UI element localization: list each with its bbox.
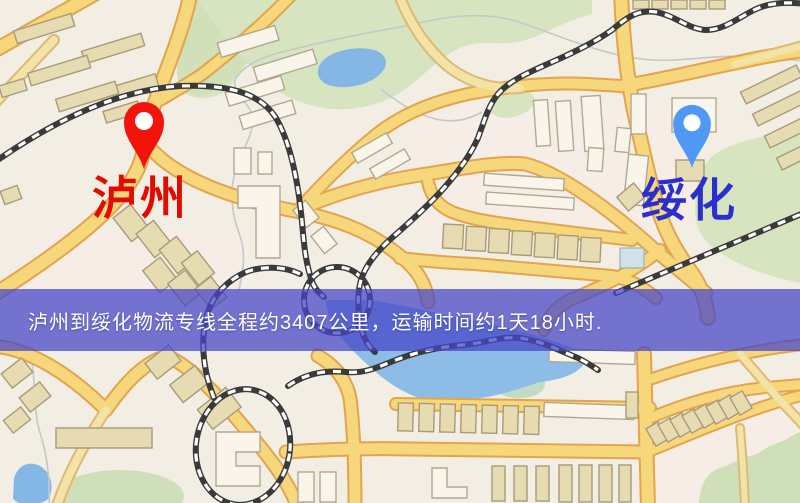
origin-marker[interactable] <box>122 100 166 175</box>
map-pin-icon <box>122 100 166 170</box>
route-info-banner: 泸州到绥化物流专线全程约3407公里，运输时间约1天18小时. <box>0 289 800 351</box>
destination-city-label: 绥化 <box>641 178 737 224</box>
map-image <box>0 0 800 503</box>
route-info-text: 泸州到绥化物流专线全程约3407公里，运输时间约1天18小时. <box>0 306 602 335</box>
map-pin-icon <box>671 103 713 169</box>
destination-marker[interactable] <box>671 103 713 174</box>
map-screenshot: 泸州 绥化 泸州到绥化物流专线全程约3407公里，运输时间约1天18小时. <box>0 0 800 503</box>
origin-city-label: 泸州 <box>92 176 188 222</box>
